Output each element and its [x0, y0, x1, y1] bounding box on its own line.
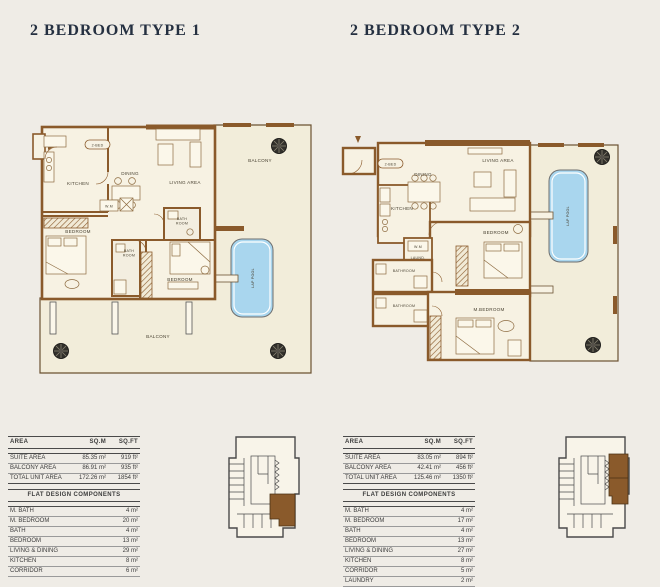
component-row: M. BATH 4 m² [343, 507, 475, 517]
svg-text:ROOM: ROOM [176, 222, 188, 226]
component-row: LIVING & DINING 27 m² [343, 547, 475, 557]
table-row: TOTAL UNIT AREA 125.46 m² 1350 ft² [343, 474, 475, 484]
wardrobe-hatch [456, 246, 468, 286]
unit-location-highlight [609, 454, 628, 504]
component-row: BEDROOM 13 m² [8, 537, 140, 547]
table-row: TOTAL UNIT AREA 172.26 m² 1854 ft² [8, 474, 140, 484]
dining-label: DINING [121, 171, 139, 176]
wm-label: W.M [414, 245, 422, 249]
svg-text:ROOM: ROOM [123, 254, 135, 258]
area-table-type1: AREA SQ.M SQ.FT SUITE AREA 85.35 m² 919 … [8, 436, 140, 577]
component-row: LAUNDRY 2 m² [343, 577, 475, 587]
key-plan-type2 [554, 434, 632, 544]
component-row: M. BATH 4 m² [8, 507, 140, 517]
wardrobe-hatch [430, 316, 441, 359]
page-title-type2: 2 BEDROOM TYPE 2 [350, 22, 521, 40]
component-row: M. BEDROOM 20 m² [8, 517, 140, 527]
svg-text:2-BED: 2-BED [385, 163, 397, 167]
tree-icon [586, 338, 601, 353]
living-area-label: LIVING AREA [482, 158, 514, 163]
bathroom-mid-label: BATH [124, 249, 134, 253]
bathroom-top-label: BATH [177, 217, 187, 221]
wm-label: W.M [105, 205, 113, 209]
components-title: FLAT DESIGN COMPONENTS [8, 489, 140, 503]
lap-pool-label: LAP POOL [566, 206, 570, 226]
table-row: BALCONY AREA 42.41 m² 456 ft² [343, 464, 475, 474]
living-area-label: LIVING AREA [169, 180, 201, 185]
component-row: LIVING & DINING 29 m² [8, 547, 140, 557]
floor-plan-type1: LAP POOL [28, 112, 318, 380]
tree-icon [54, 344, 69, 359]
component-row: BATH 4 m² [343, 527, 475, 537]
table-row: BALCONY AREA 86.91 m² 935 ft² [8, 464, 140, 474]
component-row: CORRIDOR 5 m² [343, 567, 475, 577]
component-row: CORRIDOR 6 m² [8, 567, 140, 577]
page-title-type1: 2 BEDROOM TYPE 1 [30, 22, 201, 40]
component-row: BEDROOM 13 m² [343, 537, 475, 547]
table-header: AREA SQ.M SQ.FT [343, 436, 475, 449]
component-row: KITCHEN 8 m² [8, 557, 140, 567]
unit-badge-type1: 2-BED [85, 140, 110, 149]
unit-badge-type2: 2-BED [378, 159, 403, 168]
tree-icon [595, 150, 610, 165]
component-row: KITCHEN 8 m² [343, 557, 475, 567]
component-row: M. BEDROOM 17 m² [343, 517, 475, 527]
wardrobe-hatch [44, 218, 88, 228]
bedroom-right-label: BEDROOM [167, 277, 193, 282]
balcony-bottom-label: BALCONY [146, 334, 170, 339]
balcony-top-label: BALCONY [248, 158, 272, 163]
lap-pool-label: LAP POOL [251, 268, 255, 288]
dining-label: DINING [414, 172, 432, 177]
floor-plan-type2: LAP POOL [338, 126, 628, 388]
laundry-label: LAUND. [411, 256, 426, 260]
m-bedroom-label: M.BEDROOM [473, 307, 504, 312]
entry-vestibule-type1 [33, 134, 45, 159]
entry-arrow-icon [355, 136, 361, 143]
tree-icon [272, 139, 287, 154]
bedroom-left-label: BEDROOM [65, 229, 91, 234]
kitchen-label: KITCHEN [67, 181, 89, 186]
key-plan-type1 [224, 434, 302, 544]
table-row: SUITE AREA 83.05 m² 894 ft² [343, 454, 475, 464]
components-title: FLAT DESIGN COMPONENTS [343, 489, 475, 503]
kitchen-label: KITCHEN [391, 206, 413, 211]
area-table-type2: AREA SQ.M SQ.FT SUITE AREA 83.05 m² 894 … [343, 436, 475, 587]
component-row: BATH 4 m² [8, 527, 140, 537]
table-header: AREA SQ.M SQ.FT [8, 436, 140, 449]
bedroom-label: BEDROOM [483, 230, 509, 235]
bathroom-1-label: BATHROOM [393, 269, 416, 273]
tree-icon [271, 344, 286, 359]
table-row: SUITE AREA 85.35 m² 919 ft² [8, 454, 140, 464]
wardrobe-hatch [141, 252, 152, 298]
bathroom-2-label: BATHROOM [393, 304, 416, 308]
svg-text:2-BED: 2-BED [92, 144, 104, 148]
